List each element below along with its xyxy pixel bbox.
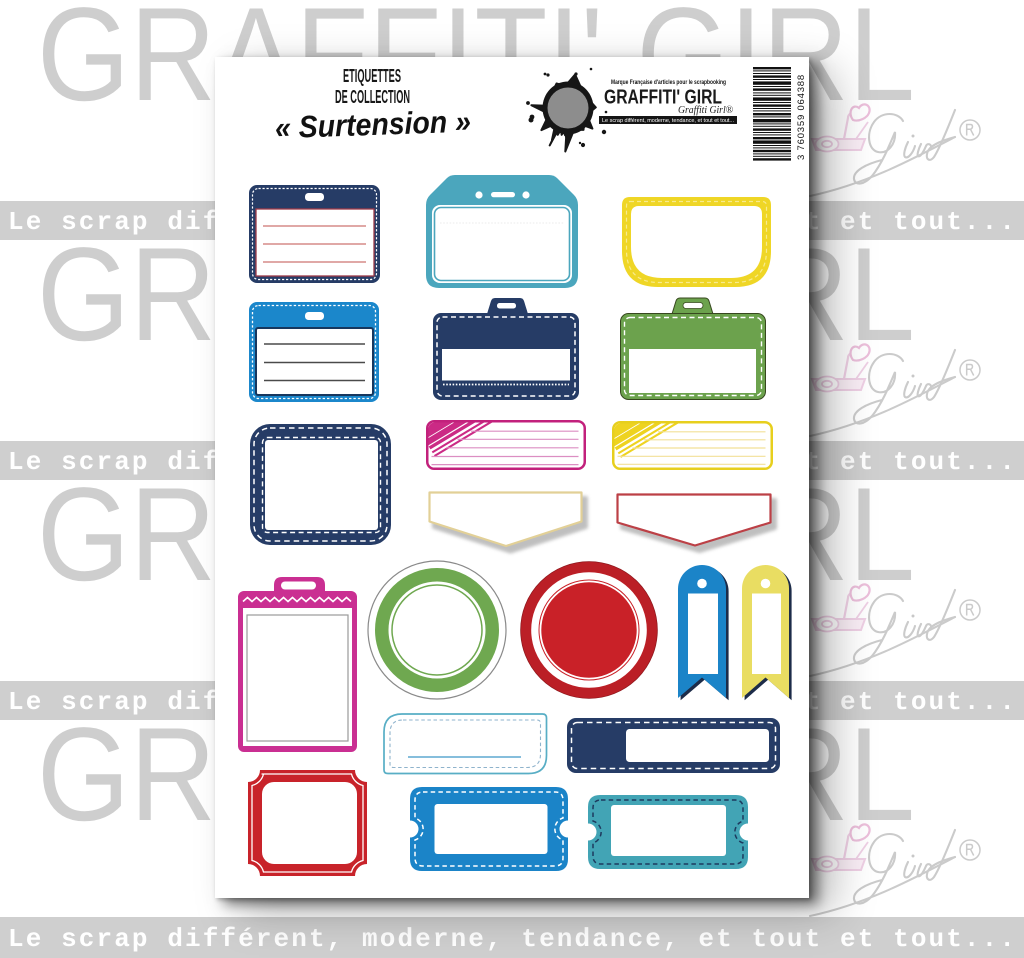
svg-text:Graffiti Girl®: Graffiti Girl® [678,105,733,116]
svg-text:Le scrap différent, moderne, t: Le scrap différent, moderne, tendance, e… [602,118,734,124]
svg-text:3 760359 064388: 3 760359 064388 [796,74,807,160]
svg-text:« Surtension »: « Surtension » [274,104,471,146]
svg-text:DE COLLECTION: DE COLLECTION [335,86,410,107]
svg-text:Le scrap différent, moderne, t: Le scrap différent, moderne, tendance, e… [8,924,1017,954]
svg-text:Marque Française d'articles po: Marque Française d'articles pour le scra… [611,79,726,86]
svg-text:ETIQUETTES: ETIQUETTES [343,65,401,86]
